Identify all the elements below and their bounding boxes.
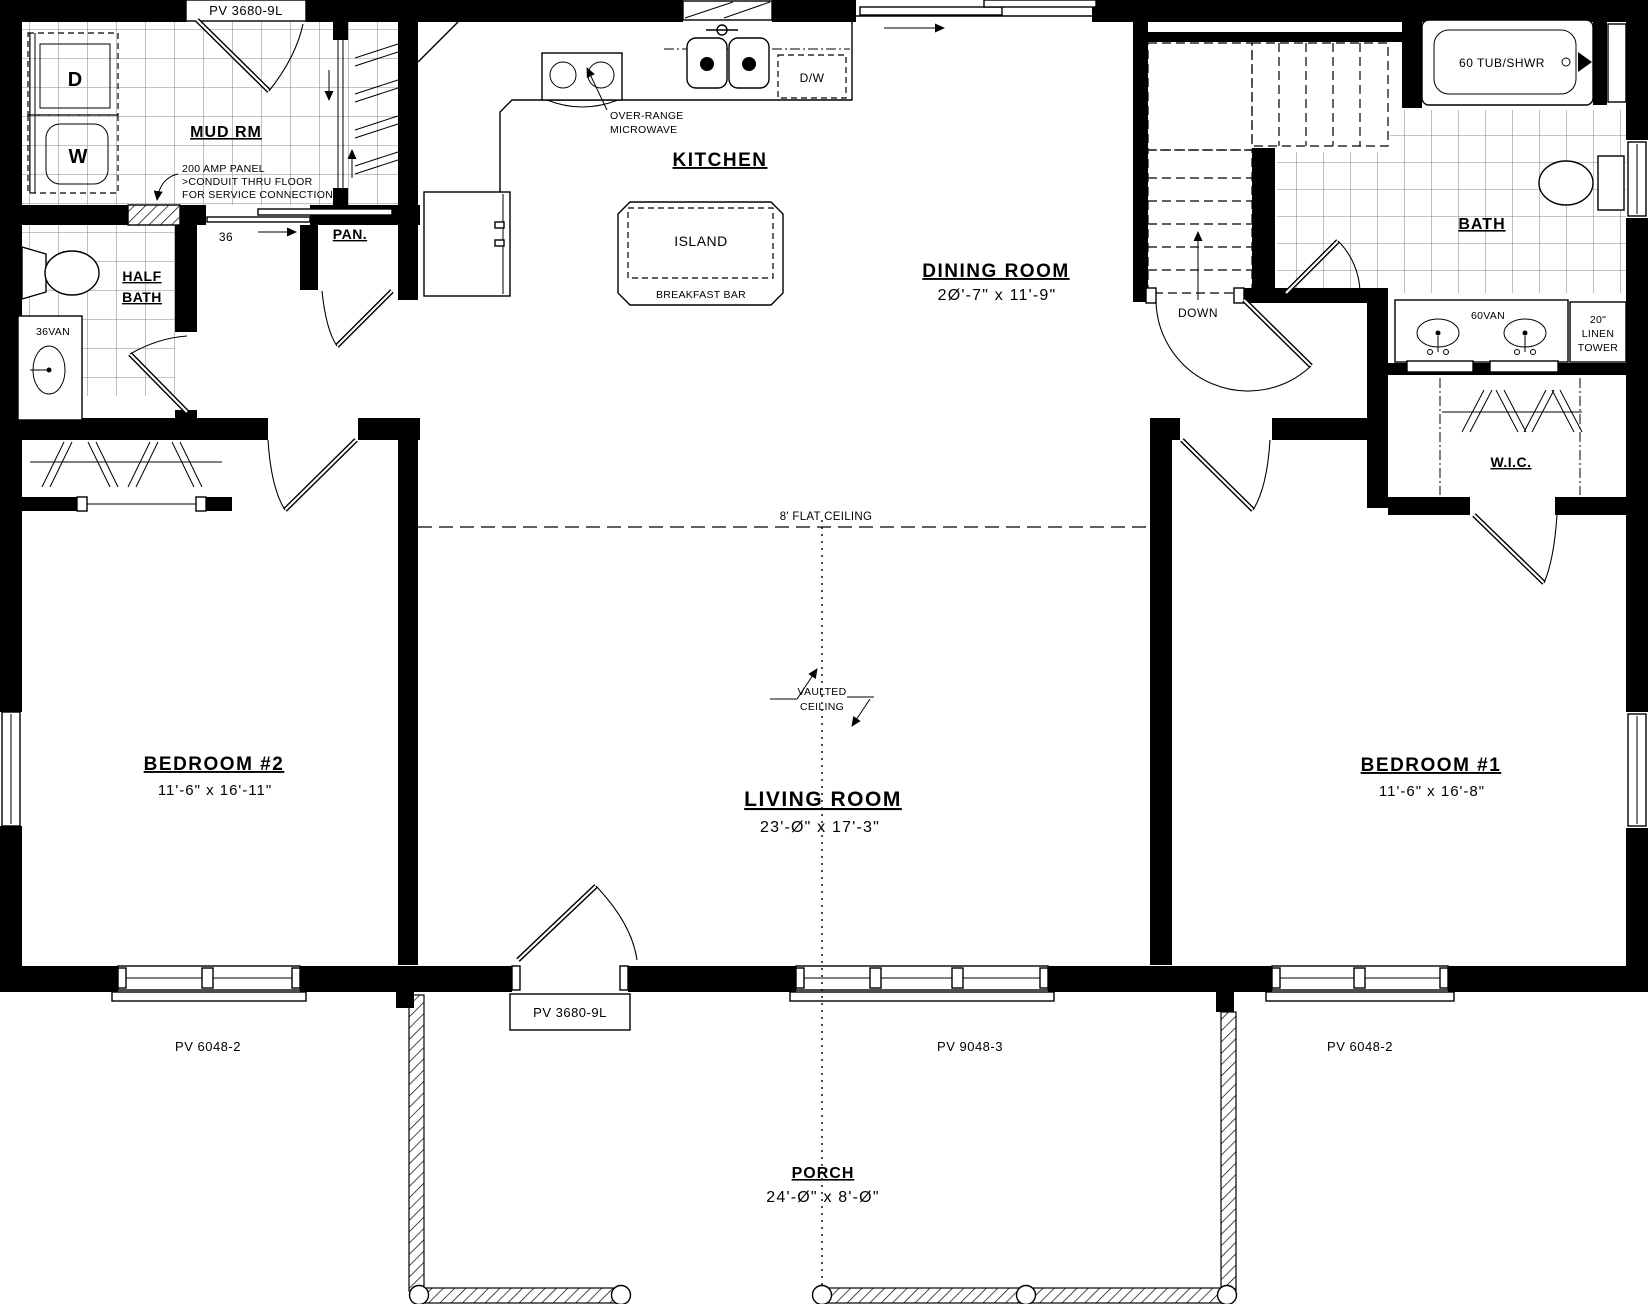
slider-panel: [984, 0, 1096, 7]
toilet-bowl: [45, 251, 99, 295]
porch: PORCH 24'-Ø" x 8'-Ø": [409, 995, 1237, 1304]
floor-plan-sheet: PV 3680-9L PV 6048-2: [0, 0, 1648, 1304]
wall-segment: [772, 0, 856, 22]
wall-segment: [1048, 966, 1272, 992]
wic-label: W.I.C.: [1490, 454, 1531, 470]
dishwasher-label: D/W: [800, 71, 825, 85]
bedroom1-dims: 11'-6" x 16'-8": [1379, 783, 1485, 800]
slider-panel: [860, 7, 1002, 15]
bath-label: BATH: [1458, 216, 1505, 233]
wall-segment: [1092, 0, 1648, 22]
wall-segment: [300, 225, 318, 290]
half-bath-label-2: BATH: [122, 289, 162, 305]
toilet-tank: [22, 247, 46, 299]
range: [542, 53, 622, 100]
walk-in-closet: W.I.C.: [1440, 378, 1582, 583]
wall-segment: [0, 966, 118, 992]
wall-segment: [300, 966, 512, 992]
vanity-60-label: 60VAN: [1471, 310, 1505, 322]
vaulted-label-2: CEILING: [800, 701, 844, 713]
wall-segment: [1593, 20, 1607, 105]
porch-rail: [1221, 1012, 1236, 1291]
electrical-panel: [128, 205, 180, 225]
wall-segment: [1555, 497, 1626, 515]
mud-door-label: PV 3680-9L: [209, 3, 283, 18]
wall-segment: [398, 205, 418, 300]
bedroom2-dims: 11'-6" x 16'-11": [158, 782, 272, 799]
window-label: PV 9048-3: [937, 1039, 1003, 1054]
range-front: [547, 100, 618, 107]
dining-room: DINING ROOM 2Ø'-7" x 11'-9": [922, 261, 1069, 304]
wall-segment: [398, 418, 418, 965]
stair-landing: [1148, 43, 1252, 150]
island-label: ISLAND: [674, 233, 728, 249]
wall-segment: [1367, 288, 1388, 508]
microwave-note-1: OVER-RANGE: [610, 110, 684, 122]
door-swing-arc: [596, 886, 637, 960]
closet-rod-hooks: [42, 442, 202, 487]
wall-segment: [1240, 288, 1367, 303]
wall-segment: [1150, 418, 1172, 965]
panel-note-3: FOR SERVICE CONNECTION: [182, 189, 333, 201]
wall-segment: [1626, 0, 1648, 140]
wall-segment: [1150, 418, 1180, 440]
front-door-pv3680: PV 3680-9L: [510, 886, 637, 1030]
wall-segment: [0, 418, 268, 440]
door-swing-arc: [1253, 440, 1270, 510]
porch-post: [612, 1286, 631, 1304]
pantry: PAN.: [322, 226, 392, 346]
closet-rod-hooks: [1462, 390, 1582, 432]
shelf-cabinet: [1608, 24, 1626, 102]
stair-wall: [1148, 32, 1405, 42]
wall-segment: [1388, 497, 1470, 515]
porch-rail: [409, 995, 424, 1291]
bedroom2-label: BEDROOM #2: [144, 754, 285, 775]
front-door-label: PV 3680-9L: [533, 1005, 607, 1020]
breakfast-bar-label: BREAKFAST BAR: [656, 289, 746, 301]
half-bath-label-1: HALF: [122, 268, 161, 284]
porch-post: [410, 1286, 429, 1304]
corner-cabinet-edge: [418, 22, 458, 62]
down-label: DOWN: [1178, 306, 1218, 320]
floor-plan-drawing: PV 3680-9L PV 6048-2: [0, 0, 1648, 1304]
wall-segment: [180, 205, 206, 225]
window-pv6048-right: PV 6048-2: [1266, 966, 1454, 1054]
porch-dims: 24'-Ø" x 8'-Ø": [766, 1189, 879, 1206]
wall-segment: [0, 205, 128, 225]
dining-room-label: DINING ROOM: [922, 261, 1069, 282]
stair-wall: [1133, 10, 1148, 302]
panel-note-2: >CONDUIT THRU FLOOR: [182, 176, 313, 188]
door-swing-arc: [1544, 515, 1557, 583]
wall-segment: [628, 966, 796, 992]
linen-label-2: LINEN: [1582, 328, 1614, 340]
porch-rail: [419, 1288, 621, 1303]
porch-post: [1218, 1286, 1237, 1304]
window-pv6048-left: PV 6048-2: [112, 966, 306, 1054]
pocket-door-track: [207, 217, 310, 222]
living-room: 8' FLAT CEILING VAULTED CEILING LIVING R…: [418, 511, 1150, 1303]
wall-segment: [1626, 218, 1648, 712]
flat-ceiling-label: 8' FLAT CEILING: [780, 511, 873, 523]
drain: [742, 57, 756, 71]
wall-segment: [8, 0, 186, 22]
wall-segment: [175, 225, 197, 332]
dining-room-dims: 2Ø'-7" x 11'-9": [938, 287, 1057, 304]
wall-segment: [398, 22, 418, 205]
washer-letter: W: [69, 146, 88, 168]
dryer-letter: D: [68, 69, 82, 91]
door-swing-arc: [322, 291, 337, 346]
linen-label-3: TOWER: [1578, 342, 1619, 354]
vanity-36-label: 36VAN: [36, 326, 70, 338]
tub-label: 60 TUB/SHWR: [1459, 56, 1545, 70]
toilet-bowl: [1539, 161, 1593, 205]
bedroom-2: BEDROOM #2 11'-6" x 16'-11": [30, 440, 356, 799]
door-width-label: 36: [219, 230, 233, 244]
wall-segment: [306, 0, 683, 22]
bedroom1-label: BEDROOM #1: [1361, 755, 1502, 776]
porch-post: [813, 1286, 832, 1304]
window-label: PV 6048-2: [175, 1039, 241, 1054]
linen-label-1: 20": [1590, 314, 1606, 326]
toilet-tank: [1598, 156, 1624, 210]
living-room-dims: 23'-Ø" x 17'-3": [760, 819, 880, 836]
wall-segment: [1448, 966, 1648, 992]
drain: [700, 57, 714, 71]
wall-segment: [1402, 22, 1422, 108]
pocket-door-panel: [258, 209, 392, 215]
kitchen: OVER-RANGE MICROWAVE D/W KITCHEN ISLAND …: [418, 22, 852, 305]
panel-note-1: 200 AMP PANEL: [182, 163, 265, 175]
living-room-label: LIVING ROOM: [744, 788, 902, 811]
window-label: PV 6048-2: [1327, 1039, 1393, 1054]
pantry-label: PAN.: [333, 226, 367, 242]
closet-front-wall: [206, 497, 232, 511]
wall-segment: [358, 418, 420, 440]
bedroom-1: BEDROOM #1 11'-6" x 16'-8": [1182, 440, 1501, 800]
window-pv9048: PV 9048-3: [790, 966, 1054, 1054]
kitchen-label: KITCHEN: [673, 150, 768, 171]
closet-front-wall: [22, 497, 80, 511]
stair-wall: [1252, 148, 1275, 302]
mud-room-label: MUD RM: [190, 124, 262, 141]
door-swing-arc: [268, 440, 285, 510]
porch-wall-stub: [1216, 992, 1234, 1012]
microwave-note-2: MICROWAVE: [610, 124, 677, 136]
porch-label: PORCH: [792, 1165, 855, 1182]
vaulted-label-1: VAULTED: [798, 686, 847, 698]
porch-post: [1017, 1286, 1036, 1304]
